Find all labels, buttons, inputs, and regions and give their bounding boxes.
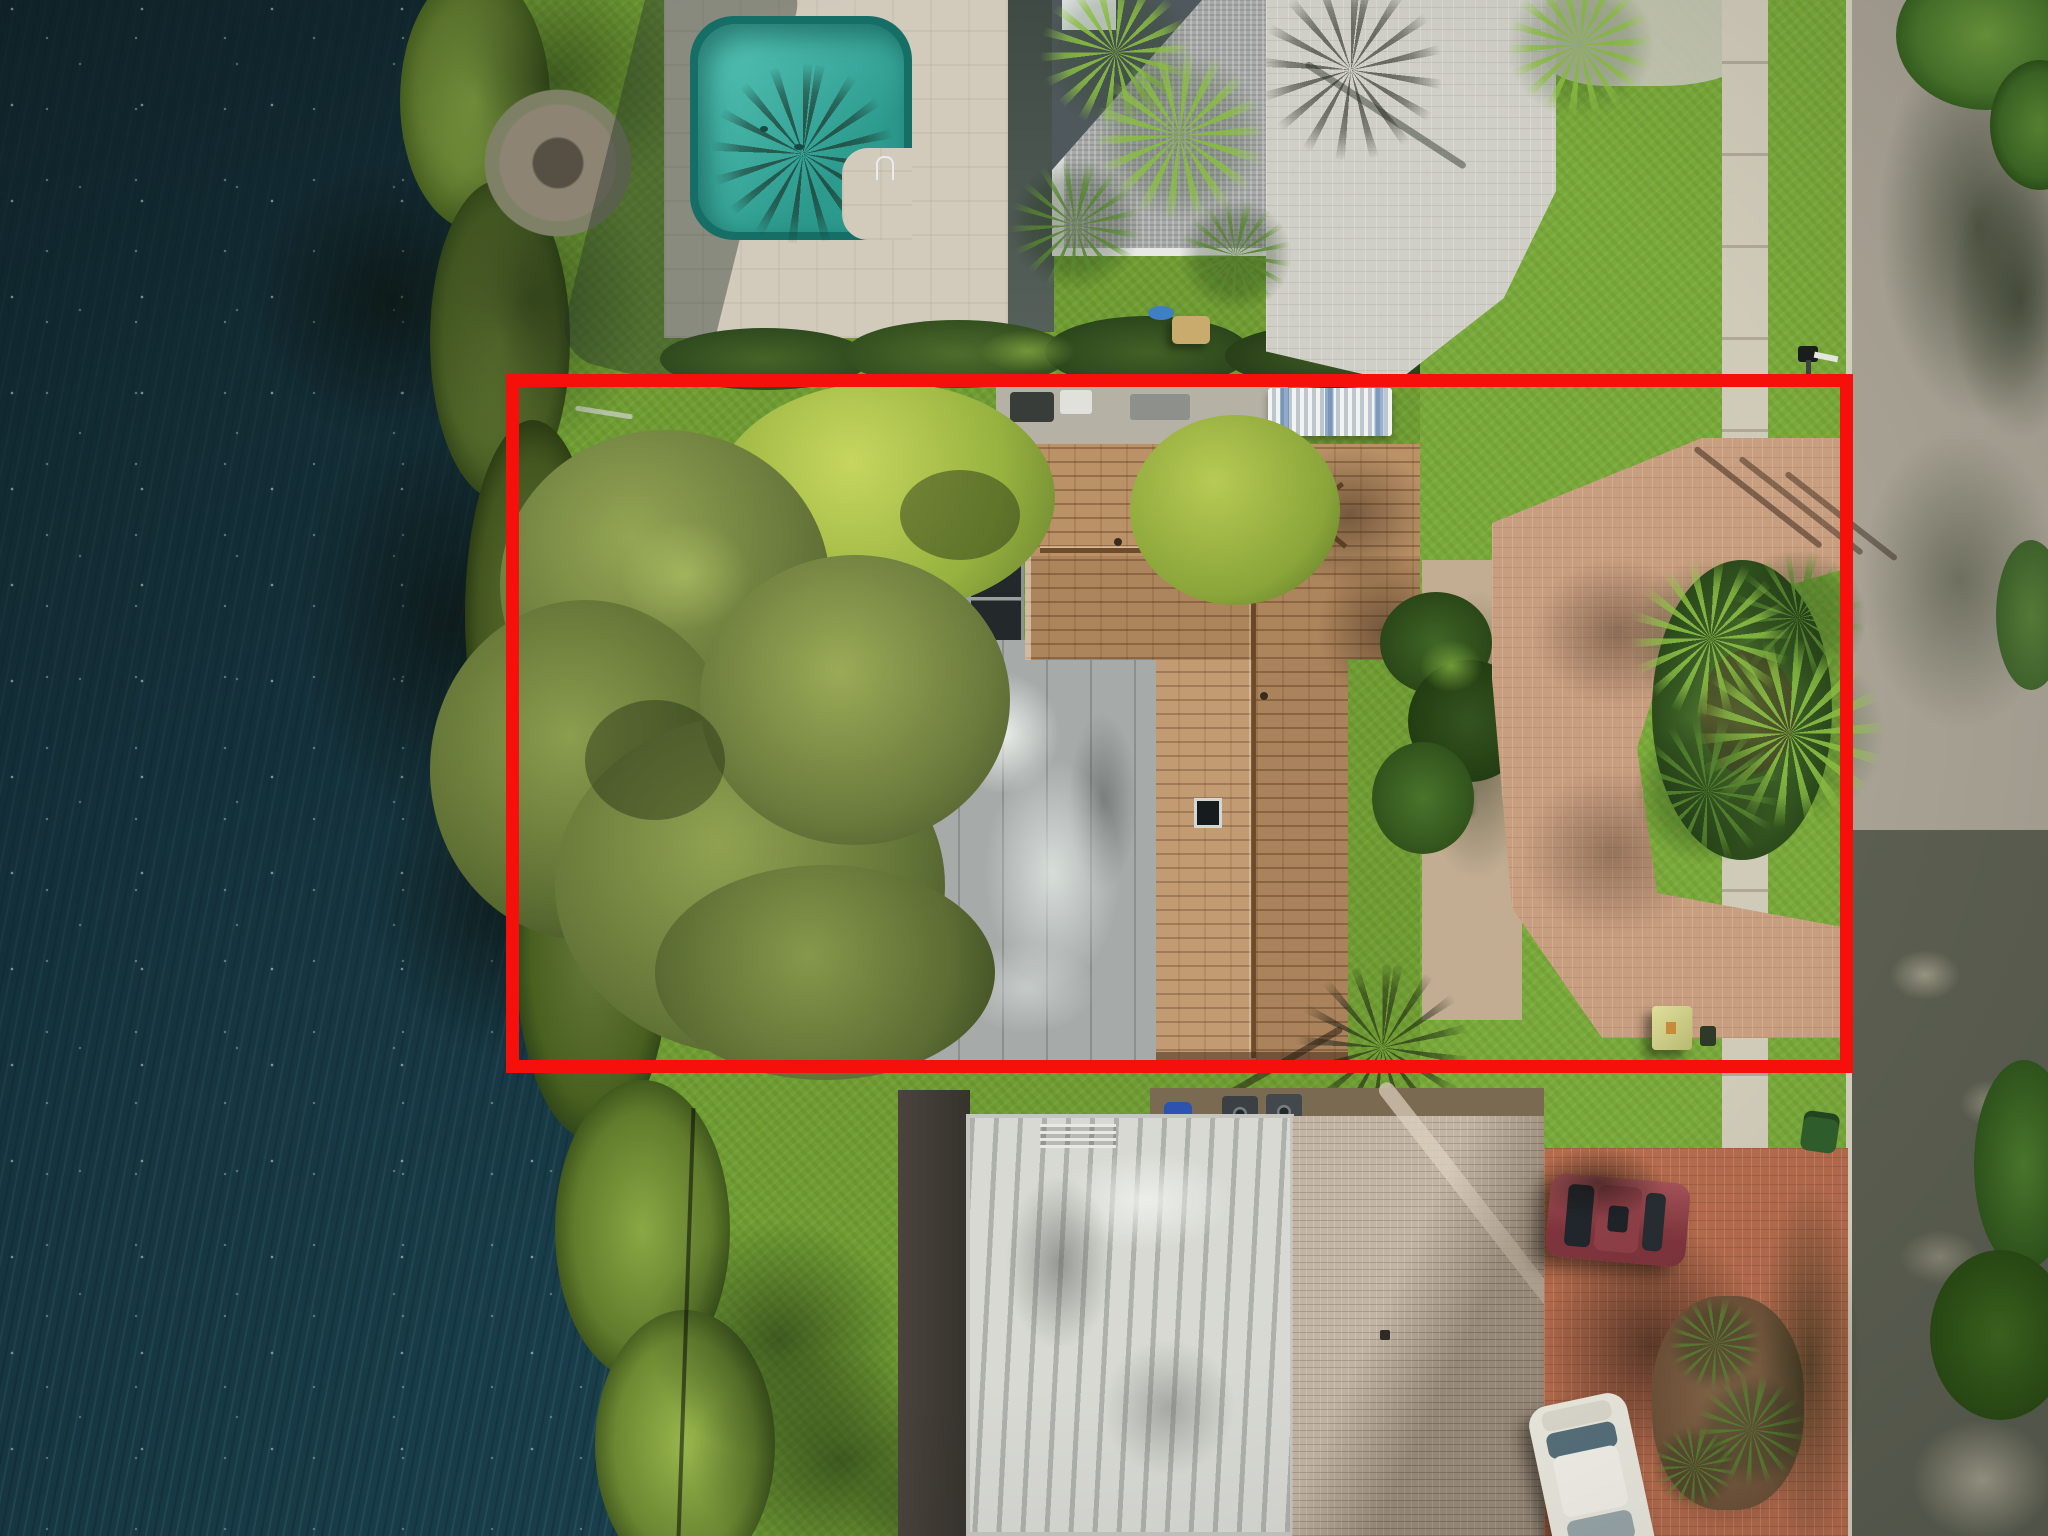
- aerial-photo: [0, 0, 2048, 1536]
- property-boundary-rectangle: [506, 374, 1853, 1073]
